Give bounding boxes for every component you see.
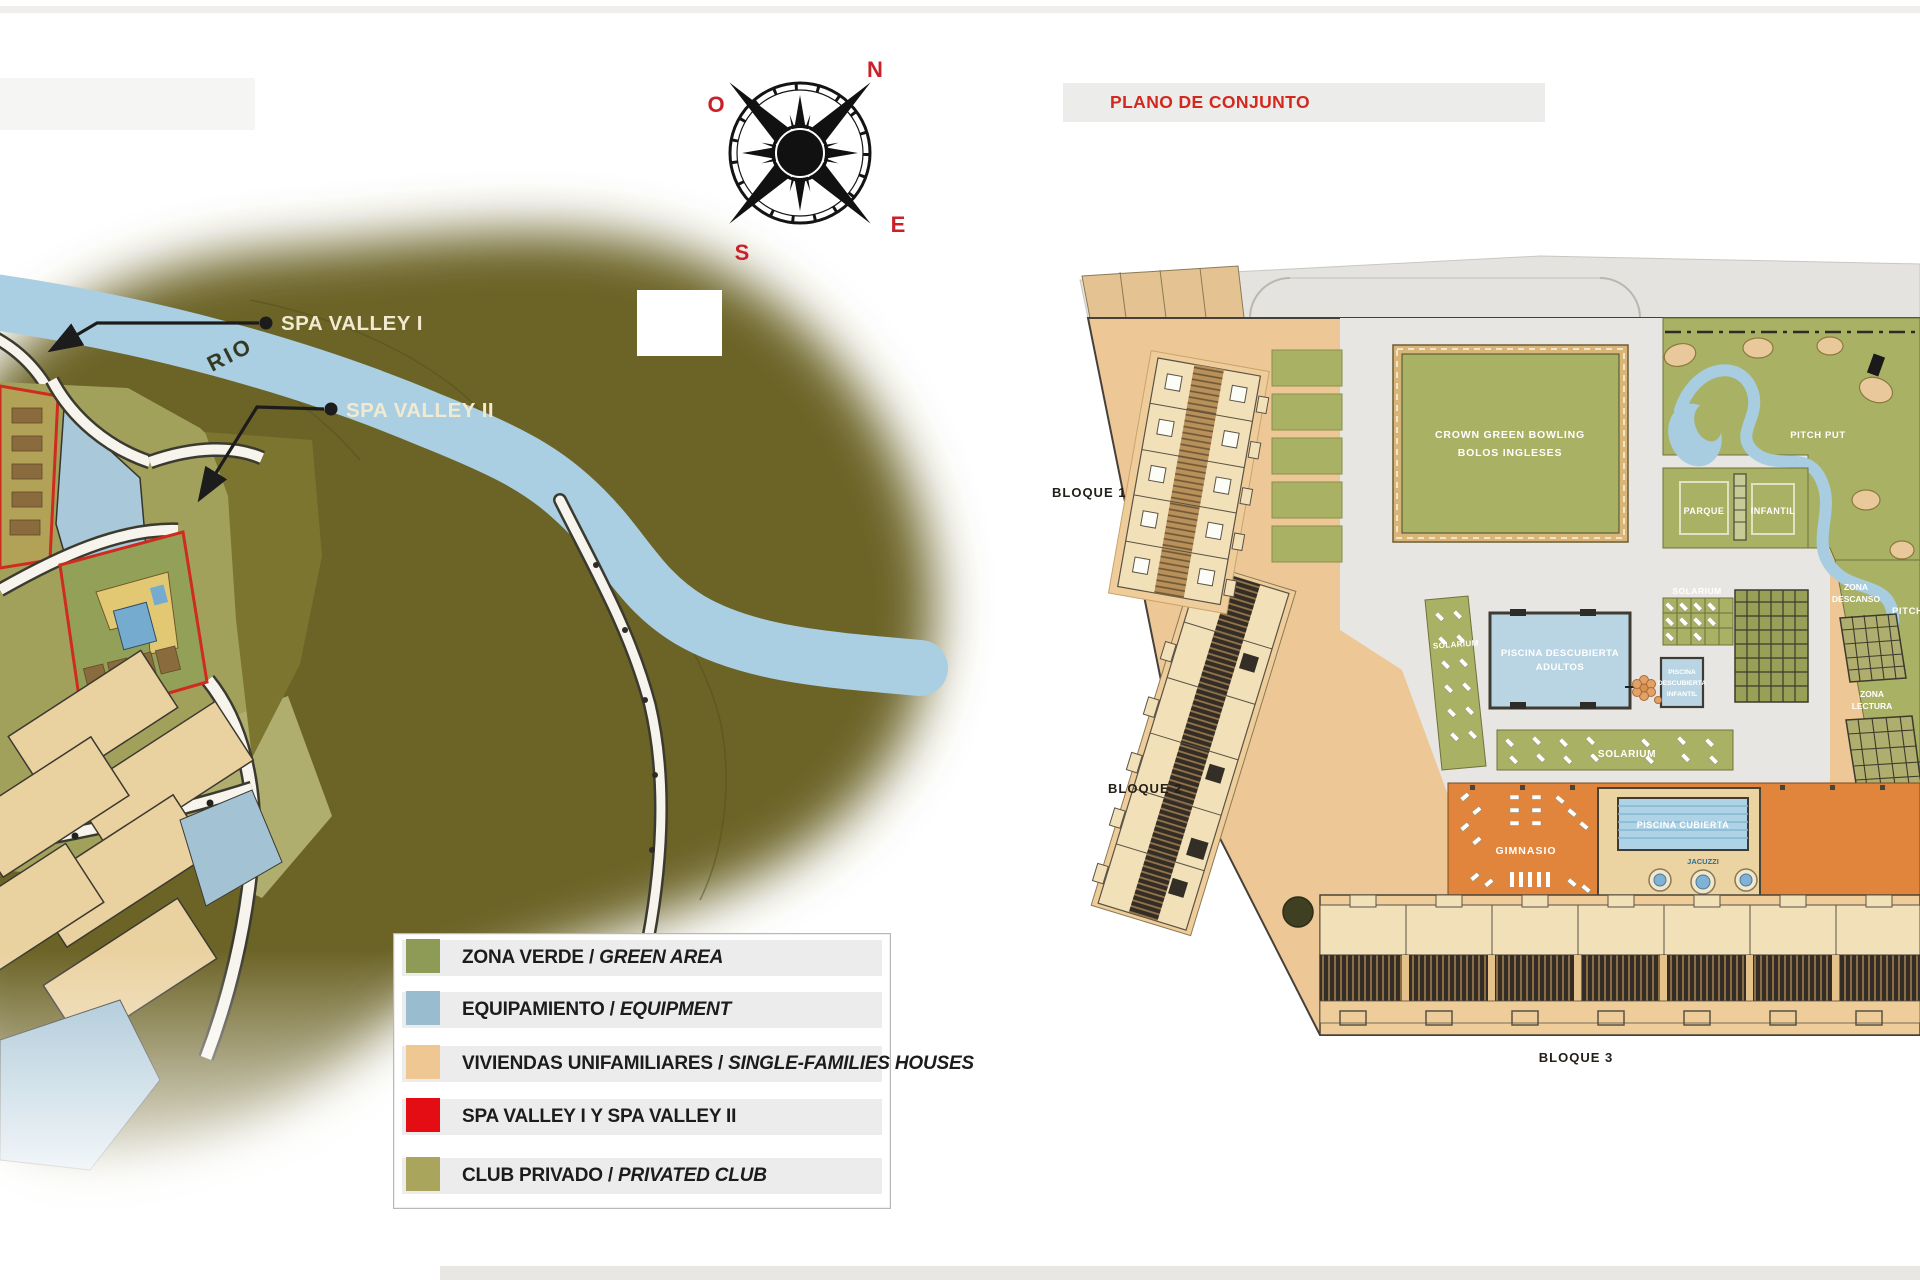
jacuzzi-circles <box>1649 869 1757 894</box>
piscina-infantil-label-1: PISCINA <box>1668 669 1696 676</box>
compass-east-label: E <box>891 212 906 237</box>
legend-row-spa-valley: SPA VALLEY I Y SPA VALLEY II <box>402 1099 882 1135</box>
legend-label-es: EQUIPAMIENTO / <box>462 999 620 1020</box>
legend-row-single-family: VIVIENDAS UNIFAMILIARES / SINGLE-FAMILIE… <box>402 1046 882 1082</box>
legend-swatch-khaki <box>406 1157 440 1191</box>
map-legend: ZONA VERDE / GREEN AREA EQUIPAMIENTO / E… <box>393 933 891 1209</box>
spa-valley-1-label: SPA VALLEY I <box>281 312 423 335</box>
bloque-2-label: BLOQUE 2 <box>1108 781 1182 796</box>
legend-row-private-club: CLUB PRIVADO / PRIVATED CLUB <box>402 1158 882 1194</box>
page-title: PLANO DE CONJUNTO <box>1063 83 1545 122</box>
legend-label-en: SINGLE-FAMILIES HOUSES <box>728 1053 974 1074</box>
gimnasio-label: GIMNASIO <box>1495 845 1556 857</box>
piscina-infantil: PISCINA DESCUBIERTA INFANTIL <box>1658 658 1707 707</box>
legend-swatch-green <box>406 939 440 973</box>
legend-swatch-red <box>406 1098 440 1132</box>
solarium-upper-label: SOLARIUM <box>1672 586 1721 596</box>
legend-label-es: CLUB PRIVADO / <box>462 1165 618 1186</box>
spa-building: GIMNASIO PISCINA CUBIERTA JACUZZI <box>1448 783 1920 908</box>
parque-infantil-label-2: INFANTIL <box>1751 506 1796 516</box>
legend-swatch-tan <box>406 1045 440 1079</box>
compass-west-label: O <box>707 92 724 117</box>
brochure-page: RIO SPA VALLEY I SPA VALLEY II <box>0 0 1920 1280</box>
access-road <box>1080 256 1920 318</box>
legend-row-green-area: ZONA VERDE / GREEN AREA <box>402 940 882 976</box>
zona-descanso-label-1: ZONA <box>1844 582 1868 592</box>
legend-label-es: VIVIENDAS UNIFAMILIARES / <box>462 1053 728 1074</box>
legend-swatch-blue <box>406 991 440 1025</box>
hedge-strips <box>1272 350 1342 562</box>
piscina-cubierta-label: PISCINA CUBIERTA <box>1637 820 1730 830</box>
zona-lectura-label-2: LECTURA <box>1852 701 1893 711</box>
zona-descanso-label-2: DESCANSO <box>1832 594 1881 604</box>
piscina-adultos: PISCINA DESCUBIERTA ADULTOS <box>1490 609 1630 709</box>
parque-infantil: PARQUE INFANTIL <box>1663 468 1808 548</box>
zona-lectura-label-1: ZONA <box>1860 689 1884 699</box>
legend-label-en: PRIVATED CLUB <box>618 1165 767 1186</box>
solarium-central-label: SOLARIUM <box>1598 749 1656 760</box>
tree-bush <box>1283 897 1313 927</box>
parque-infantil-label-1: PARQUE <box>1684 506 1725 516</box>
solarium-central: SOLARIUM <box>1497 730 1733 770</box>
jacuzzi-label: JACUZZI <box>1687 857 1719 866</box>
legend-label-es: SPA VALLEY I Y SPA VALLEY II <box>462 1106 736 1127</box>
legend-label-en: EQUIPMENT <box>620 999 731 1020</box>
piscina-infantil-label-2: DESCUBIERTA <box>1658 680 1707 687</box>
bloque-3-buildings <box>1320 895 1920 1035</box>
pitch-put-label: PITCH PUT <box>1790 430 1846 441</box>
blank-label-box <box>637 290 722 356</box>
piscina-cubierta: PISCINA CUBIERTA JACUZZI <box>1598 788 1760 908</box>
piscina-infantil-label-3: INFANTIL <box>1667 691 1698 698</box>
legend-row-equipment: EQUIPAMIENTO / EQUIPMENT <box>402 992 882 1028</box>
crown-bowling-label-1: CROWN GREEN BOWLING <box>1435 429 1585 441</box>
crown-bowling-label-2: BOLOS INGLESES <box>1458 447 1563 459</box>
compass-north-label: N <box>867 57 883 82</box>
legend-label-es: ZONA VERDE / <box>462 947 599 968</box>
bottom-fade <box>0 950 440 1280</box>
zone-spa-valley-1 <box>0 386 58 568</box>
piscina-adultos-label-1: PISCINA DESCUBIERTA <box>1501 648 1619 659</box>
section-title-bar: PLANO DE CONJUNTO <box>1063 83 1545 122</box>
legend-label-en: GREEN AREA <box>599 947 723 968</box>
piscina-adultos-label-2: ADULTOS <box>1536 662 1585 673</box>
spa-valley-2-label: SPA VALLEY II <box>346 399 494 422</box>
bloque-1-label: BLOQUE 1 <box>1052 485 1126 500</box>
site-plan: CROWN GREEN BOWLING BOLOS INGLESES PITCH… <box>1040 250 1920 1070</box>
trellis-garden <box>1735 590 1808 702</box>
compass-south-label: S <box>735 240 750 265</box>
compass-rose: N O E S <box>707 57 905 265</box>
bloque-3-label: BLOQUE 3 <box>1539 1050 1613 1065</box>
crown-green-bowling: CROWN GREEN BOWLING BOLOS INGLESES <box>1393 345 1628 542</box>
